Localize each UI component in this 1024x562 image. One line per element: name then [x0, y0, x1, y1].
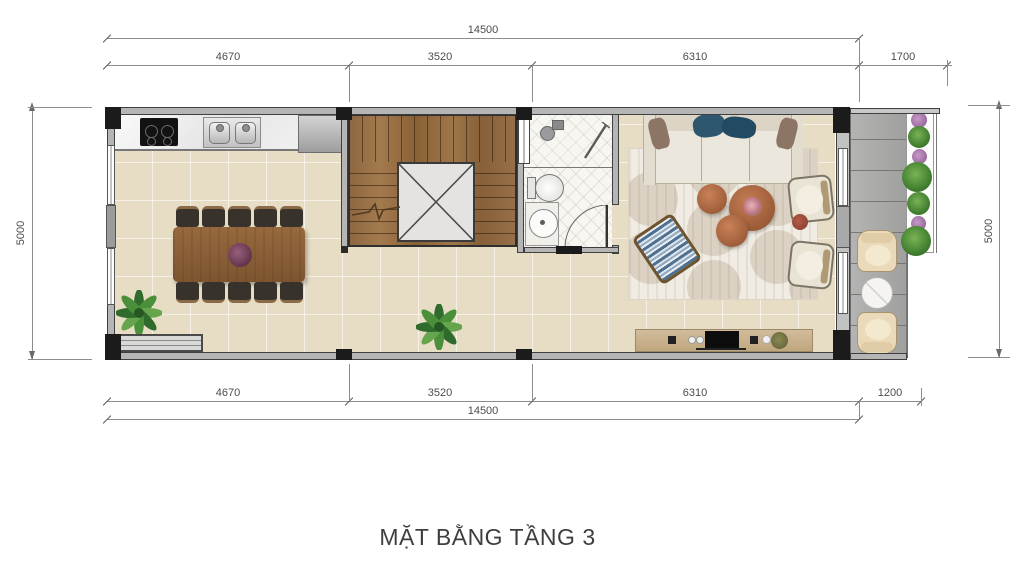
void-cross-icon — [399, 164, 473, 240]
dim-left: 5000 — [15, 221, 27, 245]
stair-treads-right — [475, 162, 515, 245]
dining-chair — [228, 206, 251, 227]
wall-kitchen-stair — [341, 114, 348, 253]
column — [336, 349, 352, 360]
dining-chair — [280, 206, 303, 227]
cooktop — [140, 118, 178, 146]
kitchen-sink — [203, 117, 261, 148]
faucet-icon — [242, 124, 250, 132]
wall-top — [107, 107, 850, 115]
dim-bottom-seg-2: 3520 — [428, 387, 452, 399]
floor-plan-canvas: 14500 4670 3520 6310 1700 4670 3520 6310… — [0, 0, 1024, 562]
sliding-door — [838, 252, 848, 314]
dining-chair — [202, 206, 225, 227]
green-bush — [901, 226, 931, 256]
column — [516, 349, 532, 360]
shower-door-icon — [580, 122, 610, 164]
green-bush — [907, 192, 930, 215]
window-seat-bench — [115, 334, 203, 352]
armchair — [787, 240, 836, 290]
dim-bottom-seg-4: 1200 — [878, 387, 902, 399]
chair-back — [861, 233, 893, 243]
wall-top-balcony — [850, 108, 940, 114]
burner — [163, 137, 172, 146]
wall-bottom — [107, 352, 850, 360]
dim-top-seg-2: 3520 — [428, 51, 452, 63]
dim-line — [107, 419, 859, 420]
decor-ball — [696, 336, 704, 344]
tv-stand — [696, 348, 746, 350]
dim-top-seg-3: 6310 — [683, 51, 707, 63]
dim-extension — [968, 357, 1010, 358]
balcony-table — [861, 277, 893, 309]
dim-extension — [921, 388, 922, 406]
dim-extension — [28, 107, 92, 108]
door-swing — [564, 205, 608, 248]
dim-extension — [947, 60, 948, 86]
stair-void — [397, 162, 475, 242]
planter-outer-edge — [936, 110, 937, 253]
chair-seat — [865, 319, 891, 340]
dining-chair — [228, 282, 251, 303]
tv-console — [635, 329, 813, 352]
flower-vase — [743, 197, 762, 216]
dim-line — [999, 105, 1000, 358]
column — [516, 107, 532, 120]
balcony-chair — [857, 230, 897, 272]
table-centerpiece — [228, 243, 252, 267]
dining-chair — [202, 282, 225, 303]
dining-chair — [254, 206, 277, 227]
window — [838, 148, 848, 206]
coffee-table — [697, 184, 727, 214]
speaker-icon — [668, 336, 676, 344]
dim-right: 5000 — [983, 219, 995, 243]
balcony-chair — [857, 312, 897, 354]
tv-icon — [705, 331, 739, 348]
dim-extension — [532, 65, 533, 102]
dim-top-seg-1: 4670 — [216, 51, 240, 63]
decor-ball — [762, 335, 771, 344]
potted-plant — [416, 304, 462, 350]
potted-plant — [116, 290, 162, 336]
chair-back — [861, 342, 893, 352]
dim-extension — [859, 38, 860, 102]
wall-left-pier — [106, 205, 116, 248]
shower-valve-icon — [552, 120, 564, 130]
duct-shaft — [518, 116, 530, 164]
dim-top-total: 14500 — [468, 24, 499, 36]
wall-pier — [836, 206, 850, 248]
wall-bath-column — [556, 246, 582, 254]
green-bush — [902, 162, 932, 192]
dim-line — [32, 107, 33, 360]
stair-treads-top — [350, 116, 515, 162]
wall-end-cap — [341, 246, 348, 253]
dim-extension — [349, 65, 350, 102]
coffee-table — [716, 215, 748, 247]
toilet-bowl — [535, 174, 564, 202]
speaker-icon — [750, 336, 758, 344]
wall-bottom-balcony — [850, 353, 907, 360]
burner — [147, 137, 156, 146]
side-table — [792, 214, 808, 230]
drain-icon — [540, 220, 545, 225]
column — [336, 107, 352, 120]
dim-line — [107, 401, 921, 402]
decor-ball — [688, 336, 696, 344]
faucet-icon — [216, 124, 224, 132]
column — [105, 107, 121, 129]
dim-extension — [28, 359, 92, 360]
dim-extension — [532, 364, 533, 401]
dim-line — [107, 38, 859, 39]
wall-bath-right — [612, 114, 619, 205]
sofa — [643, 114, 802, 184]
dim-bottom-seg-1: 4670 — [216, 387, 240, 399]
green-bush — [908, 126, 930, 148]
dining-chair — [280, 282, 303, 303]
dining-chair — [176, 206, 199, 227]
dim-bottom-seg-3: 6310 — [683, 387, 707, 399]
dim-bottom-total: 14500 — [468, 405, 499, 417]
break-line-icon — [352, 202, 400, 222]
window — [107, 248, 115, 305]
decor-plant-icon — [771, 332, 788, 349]
dim-extension — [968, 105, 1010, 106]
column — [833, 330, 850, 360]
dim-extension — [349, 364, 350, 401]
column — [833, 107, 850, 133]
plan-title: MẶT BẰNG TẦNG 3 — [0, 524, 975, 551]
dining-chair — [254, 282, 277, 303]
refrigerator — [298, 115, 345, 153]
window — [107, 145, 115, 205]
shower-partition — [524, 167, 612, 168]
dim-top-seg-4: 1700 — [891, 51, 915, 63]
dining-chair — [176, 282, 199, 303]
chair-seat — [865, 245, 891, 266]
column — [105, 334, 121, 360]
balcony-outer-edge — [906, 253, 907, 353]
